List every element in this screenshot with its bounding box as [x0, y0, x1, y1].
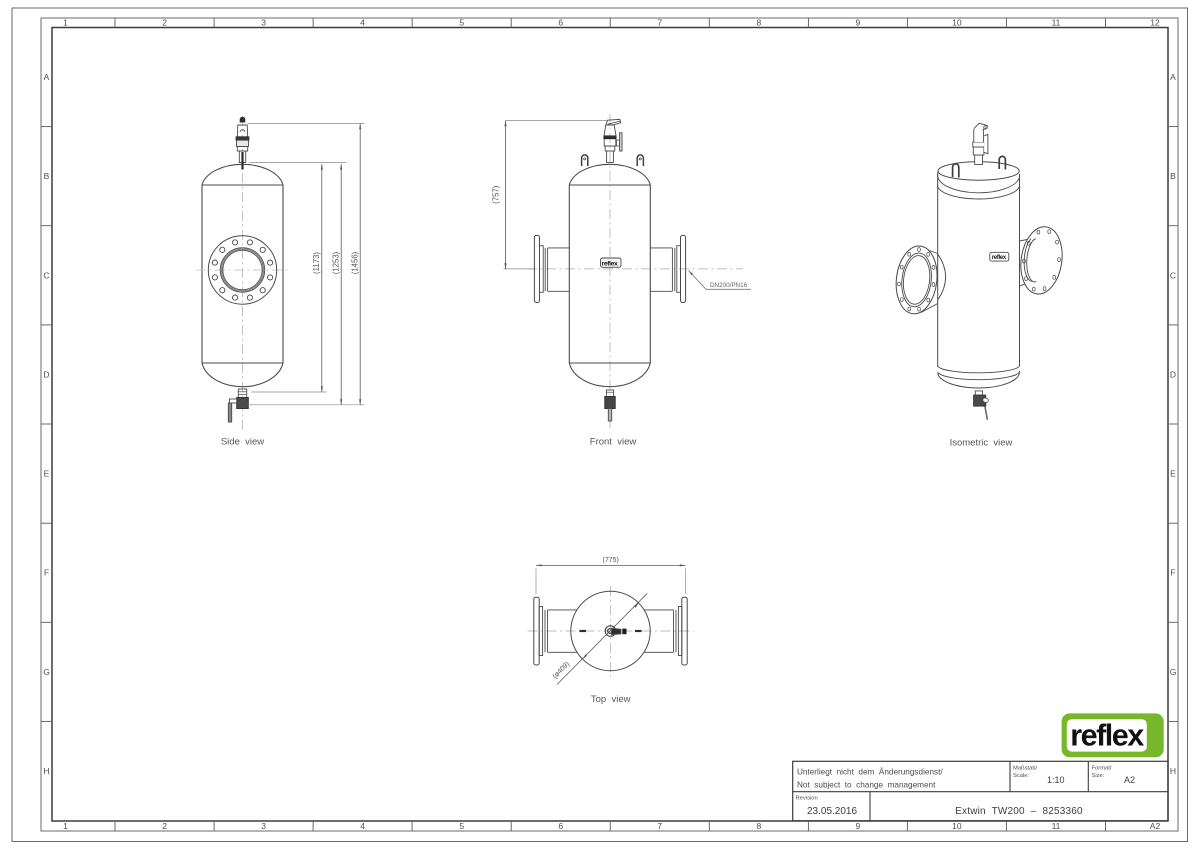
svg-text:Front view: Front view	[590, 436, 637, 447]
svg-text:reflex: reflex	[1070, 719, 1144, 753]
svg-text:F: F	[1170, 568, 1175, 578]
svg-text:10: 10	[952, 821, 962, 831]
svg-text:1:10: 1:10	[1047, 775, 1065, 785]
svg-text:Revision: Revision	[796, 796, 818, 802]
svg-text:E: E	[1170, 469, 1176, 479]
svg-text:H: H	[43, 766, 49, 776]
svg-text:A2: A2	[1124, 775, 1135, 785]
svg-text:A2: A2	[1150, 821, 1161, 831]
svg-text:A: A	[1170, 72, 1176, 82]
svg-text:12: 12	[1150, 18, 1160, 28]
svg-text:11: 11	[1052, 821, 1061, 831]
svg-text:Side view: Side view	[221, 436, 264, 447]
svg-text:C: C	[43, 270, 49, 280]
svg-text:7: 7	[657, 821, 662, 831]
svg-text:8: 8	[757, 821, 762, 831]
svg-text:5: 5	[459, 821, 464, 831]
svg-text:Maßstab/: Maßstab/	[1013, 766, 1038, 772]
svg-text:C: C	[1170, 270, 1176, 280]
svg-text:F: F	[44, 568, 49, 578]
svg-text:B: B	[44, 171, 50, 181]
svg-text:Size:: Size:	[1092, 773, 1105, 779]
svg-text:(757): (757)	[492, 185, 501, 204]
svg-text:D: D	[43, 369, 49, 379]
svg-text:8: 8	[757, 18, 762, 28]
svg-text:D: D	[1170, 369, 1176, 379]
svg-text:Not subject to change mana: Not subject to change management	[797, 781, 936, 790]
svg-text:H: H	[1170, 766, 1176, 776]
svg-text:Extwin TW200 – 8253360: Extwin TW200 – 8253360	[955, 806, 1083, 817]
svg-text:5: 5	[459, 18, 464, 28]
svg-text:9: 9	[856, 18, 861, 28]
svg-text:(1173): (1173)	[312, 252, 321, 274]
svg-text:3: 3	[261, 821, 266, 831]
svg-text:6: 6	[558, 821, 563, 831]
svg-text:DN200/PN16: DN200/PN16	[710, 282, 748, 289]
svg-text:Top view: Top view	[591, 694, 631, 705]
svg-text:Scale:: Scale:	[1013, 773, 1030, 779]
svg-text:Format/: Format/	[1092, 766, 1112, 772]
svg-text:23.05.2016: 23.05.2016	[807, 806, 857, 817]
svg-text:2: 2	[162, 821, 167, 831]
svg-text:10: 10	[952, 18, 962, 28]
svg-text:Isometric view: Isometric view	[950, 438, 1013, 449]
svg-text:1: 1	[63, 821, 68, 831]
svg-text:reflex: reflex	[992, 254, 1007, 261]
svg-text:Unterliegt nicht dem Änderu: Unterliegt nicht dem Änderungsdienst/	[797, 767, 943, 777]
svg-text:reflex: reflex	[602, 260, 618, 267]
svg-text:1: 1	[63, 18, 68, 28]
svg-text:2: 2	[162, 18, 167, 28]
svg-text:G: G	[1170, 667, 1177, 677]
svg-text:6: 6	[558, 18, 563, 28]
svg-text:E: E	[44, 469, 50, 479]
svg-text:G: G	[43, 667, 50, 677]
svg-text:11: 11	[1052, 18, 1061, 28]
svg-text:B: B	[1170, 171, 1176, 181]
svg-text:A: A	[44, 72, 50, 82]
svg-text:4: 4	[360, 821, 365, 831]
svg-text:9: 9	[856, 821, 861, 831]
svg-text:(775): (775)	[603, 557, 619, 564]
svg-text:7: 7	[657, 18, 662, 28]
svg-text:3: 3	[261, 18, 266, 28]
svg-text:(1456): (1456)	[351, 251, 360, 274]
svg-text:4: 4	[360, 18, 365, 28]
svg-text:(1253): (1253)	[332, 251, 341, 274]
